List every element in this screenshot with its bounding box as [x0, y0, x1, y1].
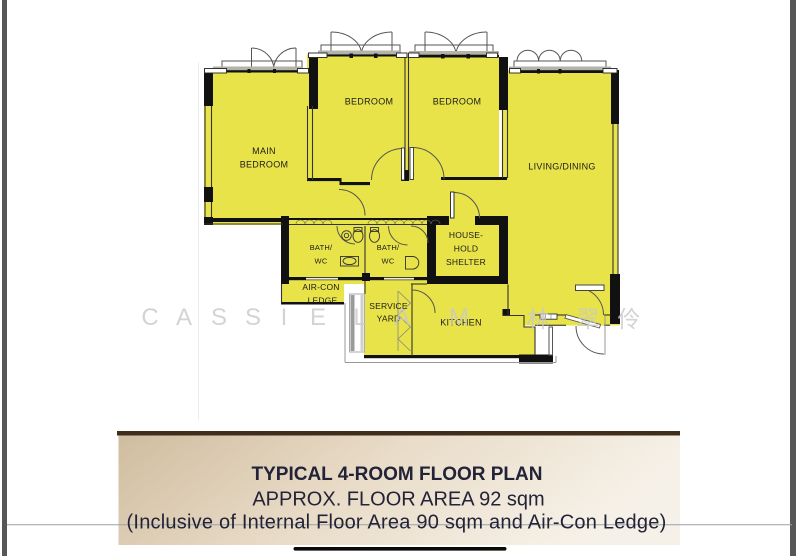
svg-text:伶: 伶 — [618, 306, 641, 332]
svg-text:MAIN: MAIN — [252, 146, 276, 156]
svg-text:BEDROOM: BEDROOM — [345, 97, 394, 107]
svg-text:LIVING/DINING: LIVING/DINING — [528, 162, 595, 172]
svg-text:E: E — [310, 304, 326, 331]
svg-text:WC: WC — [382, 257, 395, 266]
svg-text:BATH/: BATH/ — [377, 243, 400, 252]
svg-text:林: 林 — [527, 306, 550, 332]
svg-text:BATH/: BATH/ — [310, 243, 333, 252]
svg-text:BEDROOM: BEDROOM — [240, 160, 289, 170]
svg-text:HOLD: HOLD — [454, 244, 478, 254]
svg-text:(Inclusive of Internal Floor A: (Inclusive of Internal Floor Area 90 sqm… — [127, 512, 667, 534]
svg-text:L: L — [353, 304, 366, 331]
svg-text:A: A — [394, 304, 410, 331]
svg-text:A: A — [176, 304, 192, 331]
svg-text:M: M — [449, 304, 469, 331]
svg-text:TYPICAL 4-ROOM FLOOR PLAN: TYPICAL 4-ROOM FLOOR PLAN — [252, 464, 543, 485]
svg-text:SHELTER: SHELTER — [446, 257, 486, 267]
svg-text:AIR-CON: AIR-CON — [302, 282, 339, 292]
svg-text:BEDROOM: BEDROOM — [433, 97, 482, 107]
svg-text:S: S — [245, 304, 261, 331]
svg-text:C: C — [141, 304, 158, 331]
svg-text:WC: WC — [315, 257, 328, 266]
svg-text:HOUSE-: HOUSE- — [449, 230, 483, 240]
svg-text:I: I — [281, 304, 288, 331]
svg-text:翠: 翠 — [577, 306, 600, 332]
svg-text:APPROX. FLOOR AREA 92 sqm: APPROX. FLOOR AREA 92 sqm — [252, 489, 544, 511]
svg-text:S: S — [211, 304, 227, 331]
